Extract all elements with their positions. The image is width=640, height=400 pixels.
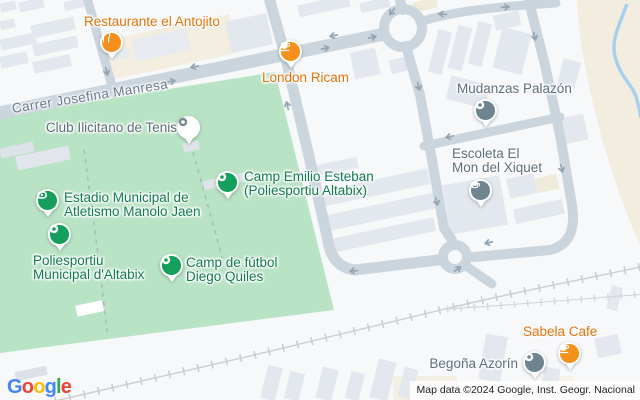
logo-letter: o — [22, 376, 33, 398]
label-line: Municipal d'Altabix — [33, 268, 144, 282]
pin-tail — [481, 120, 491, 127]
pin-circle — [50, 225, 69, 244]
pin-circle — [525, 353, 544, 372]
pin-sabela-cafe[interactable] — [558, 342, 582, 374]
pin-circle — [179, 118, 198, 137]
pin-tail — [476, 200, 486, 207]
pin-tail — [184, 137, 194, 144]
pin-circle — [162, 256, 181, 275]
poi-label-poliesportiu-municipal[interactable]: Poliesportiu Municipal d'Altabix — [33, 254, 144, 282]
pin-camp-de-futbol-diego-quiles[interactable] — [160, 254, 184, 286]
label-line: Mon del Xiquet — [452, 161, 542, 175]
google-logo[interactable]: Google — [7, 376, 71, 399]
pin-club-ilicitano-de-tenis[interactable] — [177, 116, 201, 148]
pin-tail — [530, 372, 540, 379]
logo-letter: e — [61, 376, 71, 398]
label-line: Atletismo Manolo Jaen — [64, 205, 201, 219]
pin-circle — [471, 181, 490, 200]
label-line: Camp de fútbol — [186, 256, 278, 270]
pin-circle — [38, 191, 57, 210]
pin-mudanzas-palazon[interactable] — [474, 99, 498, 131]
label-line: Poliesportiu — [33, 254, 144, 268]
pin-tail — [223, 192, 233, 199]
poi-label-sabela-cafe[interactable]: Sabela Cafe — [523, 325, 597, 339]
pin-tail — [55, 244, 65, 251]
poi-label-club-ilicitano-de-tenis[interactable]: Club Ilicitano de Tenis — [46, 121, 177, 135]
poi-label-camp-de-futbol[interactable]: Camp de fútbol Diego Quiles — [186, 256, 278, 284]
pin-tail — [565, 363, 575, 370]
poi-label-restaurante-el-antojito[interactable]: Restaurante el Antojito — [84, 15, 220, 29]
logo-letter: o — [33, 376, 44, 398]
pin-tail — [167, 275, 177, 282]
logo-letter: g — [45, 376, 56, 398]
label-line: Camp Emilio Esteban — [244, 170, 374, 184]
pin-restaurante-el-antojito[interactable] — [100, 31, 124, 63]
pin-circle — [476, 101, 495, 120]
pin-circle — [218, 173, 237, 192]
pin-begona-azorin[interactable] — [523, 351, 547, 383]
pin-escoleta-el-mon-del-xiquet[interactable] — [469, 179, 493, 211]
map-viewport[interactable]: Carrer Josefina Manresa — [0, 0, 640, 400]
pin-tail — [107, 52, 117, 59]
poi-label-escoleta[interactable]: Escoleta El Mon del Xiquet — [452, 147, 542, 175]
poi-label-camp-emilio-esteban[interactable]: Camp Emilio Esteban (Poliesportiu Altabi… — [244, 170, 374, 198]
pin-circle — [102, 33, 121, 52]
pin-london-ricam[interactable] — [279, 40, 303, 72]
logo-letter: G — [7, 376, 22, 398]
poi-label-mudanzas-palazon[interactable]: Mudanzas Palazón — [457, 82, 572, 96]
pin-tail — [43, 210, 53, 217]
poi-label-begona-azorin[interactable]: Begoña Azorín — [429, 357, 518, 371]
label-line: Escoleta El — [452, 147, 542, 161]
label-line: Estadio Municipal de — [64, 191, 201, 205]
poi-label-london-ricam[interactable]: London Ricam — [262, 71, 349, 85]
pin-circle — [560, 344, 579, 363]
pin-camp-emilio-esteban[interactable] — [216, 171, 240, 203]
poi-label-estadio-municipal[interactable]: Estadio Municipal de Atletismo Manolo Ja… — [64, 191, 201, 219]
pin-tail — [286, 61, 296, 68]
map-attribution: Map data ©2024 Google, Inst. Geogr. Naci… — [410, 381, 640, 400]
pin-poliesportiu-municipal-altabix[interactable] — [48, 223, 72, 255]
pin-estadio-municipal[interactable] — [36, 189, 60, 221]
label-line: (Poliesportiu Altabix) — [244, 184, 374, 198]
label-line: Diego Quiles — [186, 270, 278, 284]
pin-circle — [281, 42, 300, 61]
